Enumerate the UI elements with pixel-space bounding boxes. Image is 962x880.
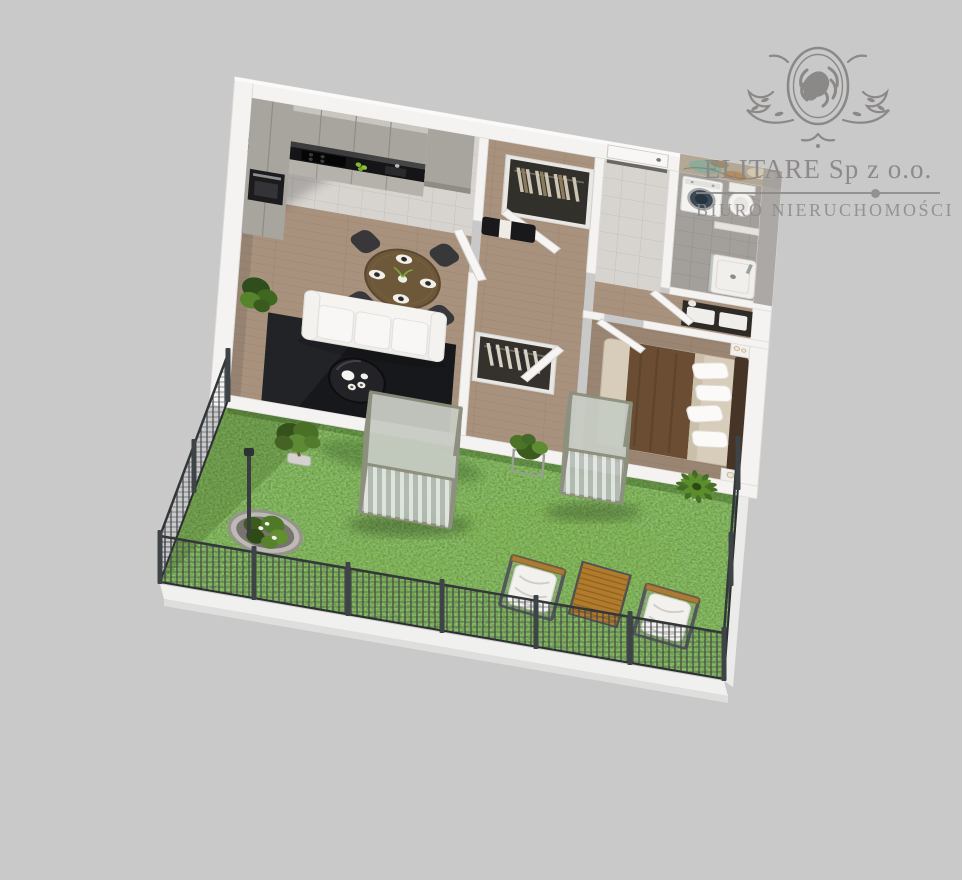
watermark: ELITARE Sp z o.o. BIURO NIERUCHOMOŚCI — [696, 42, 940, 221]
divider-dot — [871, 189, 880, 198]
lion-emblem-icon — [733, 42, 903, 154]
company-subtitle: BIURO NIERUCHOMOŚCI — [696, 200, 940, 221]
logo-divider — [696, 192, 940, 194]
floorplan-render: ELITARE Sp z o.o. BIURO NIERUCHOMOŚCI — [0, 0, 962, 880]
shower — [710, 254, 757, 299]
company-name: ELITARE Sp z o.o. — [696, 154, 940, 185]
